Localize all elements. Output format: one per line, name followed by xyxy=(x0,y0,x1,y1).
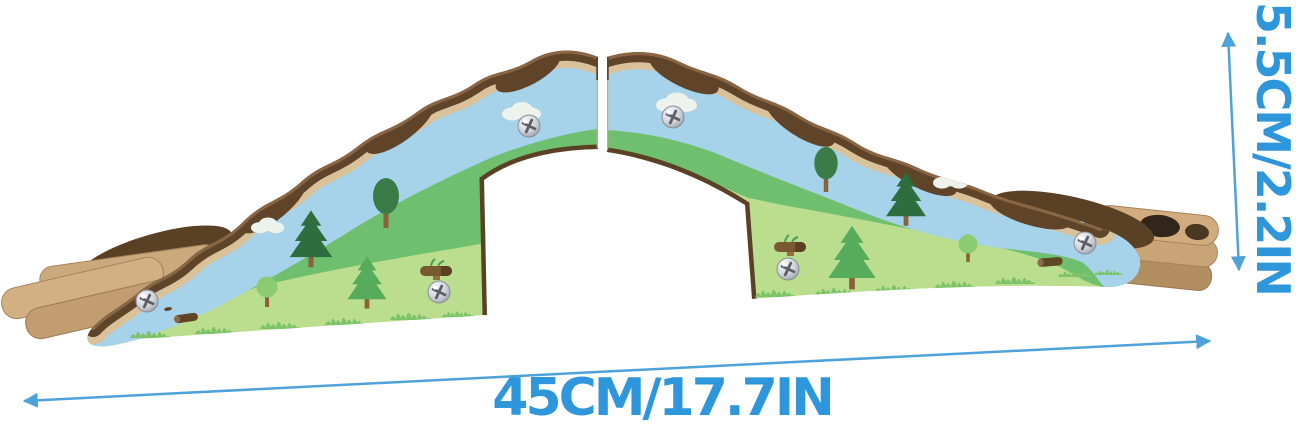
height-dimension-arrow xyxy=(1228,33,1239,270)
screw xyxy=(518,115,540,137)
screw xyxy=(428,281,450,303)
bridge-right-half xyxy=(607,46,1140,299)
bridge-left-half xyxy=(87,44,598,347)
product-image xyxy=(0,0,1296,428)
screw xyxy=(662,106,684,128)
cloud xyxy=(933,172,968,189)
screw xyxy=(136,290,158,312)
product-screenshot: 45CM/17.7IN 5.5CM/2.2IN xyxy=(0,0,1296,428)
screw xyxy=(777,258,799,280)
width-dimension-label: 45CM/17.7IN xyxy=(492,374,831,423)
screw xyxy=(1074,232,1096,254)
height-dimension-label: 5.5CM/2.2IN xyxy=(1250,2,1296,295)
